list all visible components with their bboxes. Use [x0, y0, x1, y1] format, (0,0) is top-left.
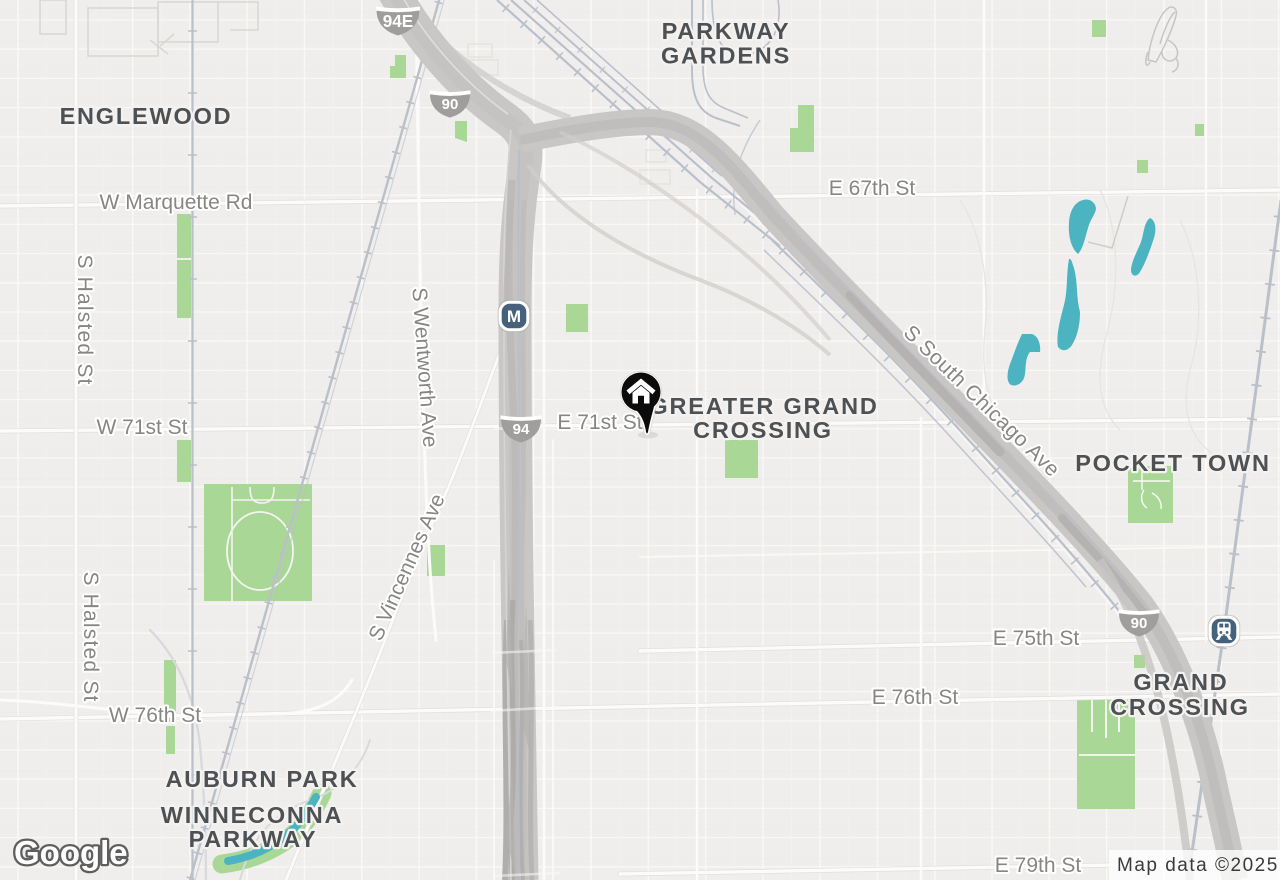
svg-text:POCKET TOWN: POCKET TOWN	[1075, 450, 1271, 476]
svg-text:E 71st St: E 71st St	[557, 411, 642, 434]
svg-text:GRAND: GRAND	[1133, 669, 1228, 695]
svg-text:S Halsted St: S Halsted St	[79, 571, 102, 702]
svg-text:E 79th St: E 79th St	[995, 854, 1082, 877]
svg-text:E 76th St: E 76th St	[872, 686, 959, 709]
svg-text:Google: Google	[14, 834, 128, 871]
svg-text:PARKWAY: PARKWAY	[662, 18, 791, 44]
svg-text:ENGLEWOOD: ENGLEWOOD	[60, 103, 233, 129]
svg-text:GREATER GRAND: GREATER GRAND	[649, 393, 878, 419]
svg-text:CROSSING: CROSSING	[693, 417, 833, 443]
svg-text:94: 94	[513, 421, 530, 438]
svg-text:S Halsted St: S Halsted St	[73, 254, 96, 385]
svg-text:AUBURN PARK: AUBURN PARK	[166, 766, 359, 792]
svg-text:90: 90	[1131, 615, 1148, 632]
svg-text:94E: 94E	[383, 12, 413, 31]
svg-text:PARKWAY: PARKWAY	[189, 826, 318, 852]
svg-text:Map data ©2025: Map data ©2025	[1117, 855, 1279, 876]
svg-text:90: 90	[442, 96, 459, 113]
svg-text:E 67th St: E 67th St	[829, 177, 916, 200]
svg-text:WINNECONNA: WINNECONNA	[161, 802, 344, 828]
svg-text:CROSSING: CROSSING	[1110, 694, 1250, 720]
svg-text:W Marquette Rd: W Marquette Rd	[100, 191, 253, 214]
svg-text:W 76th St: W 76th St	[109, 704, 201, 727]
svg-text:M: M	[507, 307, 521, 326]
svg-text:W 71st St: W 71st St	[96, 416, 187, 439]
svg-text:E 75th St: E 75th St	[993, 627, 1080, 650]
svg-text:GARDENS: GARDENS	[661, 43, 791, 69]
